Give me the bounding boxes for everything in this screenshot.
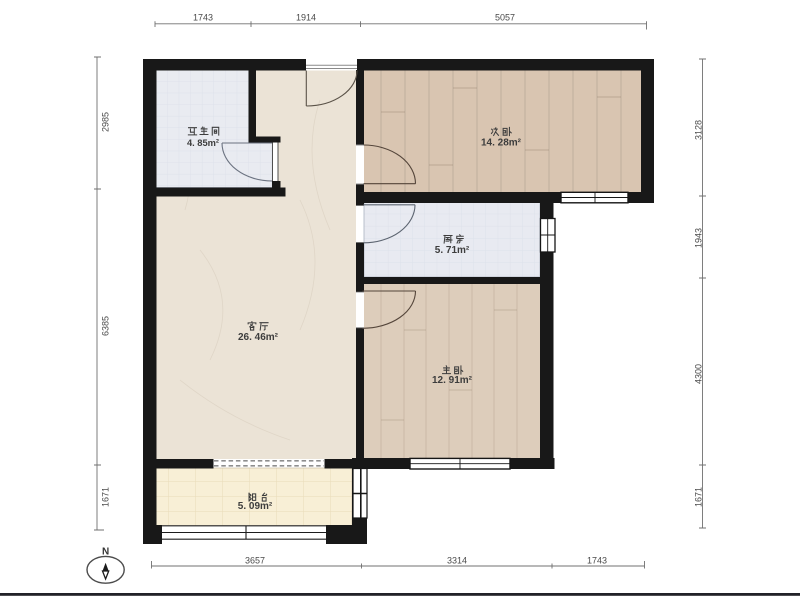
svg-text:5. 71m²: 5. 71m² [435,245,470,256]
svg-text:3314: 3314 [447,556,467,566]
svg-text:1671: 1671 [101,487,111,507]
svg-text:2985: 2985 [101,112,111,132]
svg-text:1914: 1914 [296,13,316,23]
svg-text:14. 28m²: 14. 28m² [481,138,522,149]
svg-text:12. 91m²: 12. 91m² [432,375,473,386]
svg-text:5. 09m²: 5. 09m² [238,501,273,512]
svg-text:6385: 6385 [101,316,111,336]
svg-text:4. 85m²: 4. 85m² [187,138,219,148]
svg-text:3128: 3128 [694,120,704,140]
svg-text:1743: 1743 [193,13,213,23]
svg-text:1943: 1943 [694,228,704,248]
svg-text:26. 46m²: 26. 46m² [238,332,279,343]
svg-text:1671: 1671 [694,487,704,507]
svg-text:4300: 4300 [694,364,704,384]
svg-text:1743: 1743 [587,556,607,566]
svg-text:3657: 3657 [245,556,265,566]
svg-text:5057: 5057 [495,13,515,23]
